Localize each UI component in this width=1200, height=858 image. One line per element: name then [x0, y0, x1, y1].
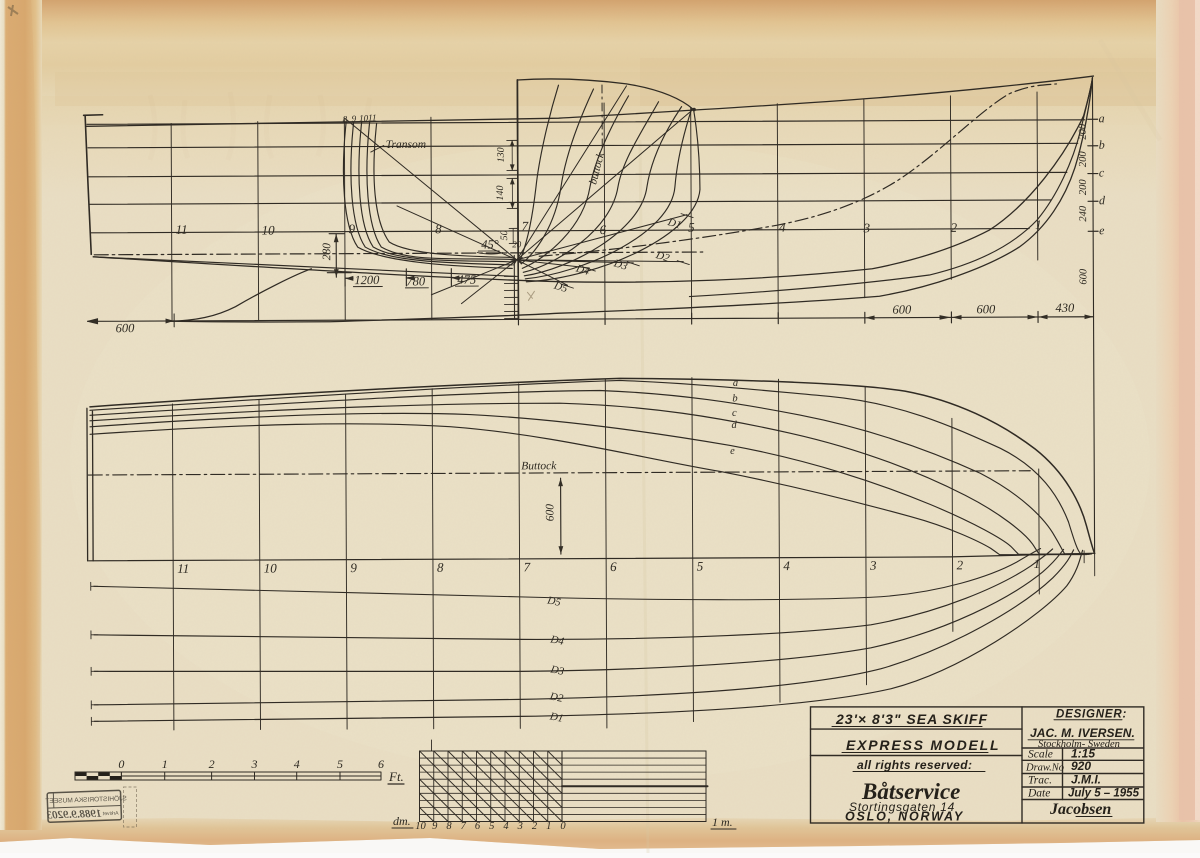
svg-text:July 5 – 1955: July 5 – 1955: [1068, 788, 1140, 800]
svg-text:4: 4: [783, 558, 790, 573]
svg-text:c: c: [732, 408, 737, 419]
svg-text:7: 7: [522, 218, 529, 233]
svg-text:EXPRESS MODELL: EXPRESS MODELL: [846, 737, 1000, 753]
svg-text:8: 8: [446, 821, 452, 832]
svg-text:200: 200: [1078, 151, 1089, 168]
svg-text:10: 10: [262, 222, 276, 237]
svg-text:DESIGNER:: DESIGNER:: [1056, 709, 1127, 721]
svg-text:3: 3: [251, 757, 258, 771]
svg-text:8: 8: [437, 560, 444, 575]
svg-text:6: 6: [475, 821, 481, 832]
svg-text:5: 5: [489, 821, 494, 832]
svg-text:430: 430: [1055, 301, 1075, 315]
svg-text:780: 780: [406, 274, 426, 288]
svg-text:600: 600: [544, 504, 556, 522]
svg-text:b: b: [1099, 138, 1105, 152]
svg-text:1988.9.9203: 1988.9.9203: [46, 808, 102, 822]
svg-text:10: 10: [264, 560, 278, 575]
svg-text:6: 6: [610, 559, 617, 574]
svg-text:Jacobsen: Jacobsen: [1049, 801, 1111, 818]
svg-text:130: 130: [496, 147, 507, 162]
svg-text:J.M.I.: J.M.I.: [1071, 773, 1101, 787]
svg-text:5: 5: [688, 220, 695, 235]
svg-text:5: 5: [697, 559, 704, 574]
svg-text:0: 0: [560, 821, 566, 832]
svg-text:3: 3: [863, 220, 871, 235]
svg-text:1 m.: 1 m.: [712, 815, 733, 829]
svg-text:e: e: [730, 446, 735, 457]
svg-text:1: 1: [162, 757, 168, 771]
svg-text:9: 9: [432, 821, 438, 832]
svg-text:e: e: [1099, 223, 1105, 237]
svg-text:4: 4: [503, 821, 509, 832]
svg-text:200: 200: [1078, 179, 1089, 196]
svg-text:23'× 8'3" SEA SKIFF: 23'× 8'3" SEA SKIFF: [835, 711, 988, 727]
svg-text:d: d: [732, 420, 738, 431]
svg-text:11: 11: [177, 561, 189, 576]
svg-text:1: 1: [546, 821, 551, 832]
svg-text:OSLO, NORWAY: OSLO, NORWAY: [845, 810, 964, 824]
svg-text:all rights reserved:: all rights reserved:: [857, 758, 972, 772]
svg-text:1200: 1200: [354, 273, 380, 287]
svg-text:600: 600: [976, 302, 996, 316]
svg-text:Arkivet: Arkivet: [102, 811, 119, 818]
svg-text:Buttock: Buttock: [521, 460, 557, 472]
svg-text:5: 5: [337, 757, 343, 771]
svg-text:a: a: [733, 378, 738, 389]
svg-text:140: 140: [495, 185, 506, 200]
svg-text:2: 2: [957, 557, 964, 572]
svg-text:600: 600: [1078, 268, 1089, 285]
svg-text:0: 0: [118, 757, 124, 771]
svg-text:240: 240: [1078, 205, 1089, 222]
svg-text:b: b: [732, 393, 737, 404]
svg-text:d: d: [1099, 193, 1106, 207]
svg-text:c: c: [1099, 166, 1105, 180]
svg-text:4: 4: [779, 220, 786, 235]
svg-text:50: 50: [499, 230, 510, 240]
svg-text:9: 9: [350, 560, 357, 575]
svg-text:Scale: Scale: [1028, 749, 1053, 761]
svg-text:600: 600: [116, 321, 136, 335]
svg-text:920: 920: [1071, 759, 1091, 773]
svg-text:7: 7: [461, 821, 467, 832]
svg-text:a: a: [1099, 111, 1105, 125]
svg-text:3: 3: [517, 821, 523, 832]
svg-text:Transom: Transom: [386, 139, 426, 151]
svg-text:dm.: dm.: [393, 814, 411, 828]
svg-text:9: 9: [352, 114, 357, 124]
svg-text:600: 600: [892, 303, 912, 317]
svg-text:475: 475: [457, 273, 476, 287]
svg-text:10: 10: [415, 821, 426, 832]
svg-text:11: 11: [176, 222, 188, 237]
svg-text:2: 2: [532, 821, 538, 832]
svg-text:2: 2: [951, 220, 958, 235]
svg-text:3: 3: [869, 558, 877, 573]
svg-text:20: 20: [512, 239, 522, 249]
svg-text:7: 7: [524, 559, 531, 574]
svg-text:Date: Date: [1027, 788, 1050, 800]
svg-text:Draw.No: Draw.No: [1025, 763, 1064, 774]
svg-text:11: 11: [368, 113, 376, 123]
svg-text:200: 200: [1078, 123, 1089, 140]
svg-text:2: 2: [209, 757, 215, 771]
svg-text:Trac.: Trac.: [1028, 775, 1052, 787]
svg-text:Ft.: Ft.: [388, 769, 404, 784]
svg-text:6: 6: [378, 757, 384, 771]
svg-text:280: 280: [321, 243, 333, 261]
svg-text:4: 4: [294, 757, 300, 771]
